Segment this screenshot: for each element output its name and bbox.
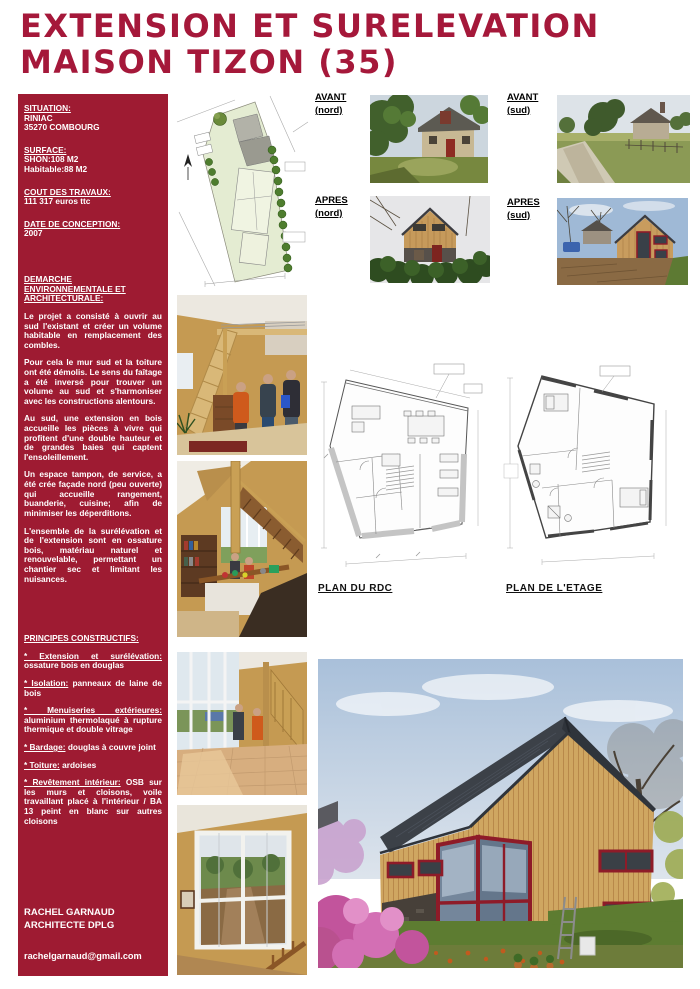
photo-corner-window xyxy=(177,805,307,975)
label-apres-sud: APRES (sud) xyxy=(507,197,540,223)
sidebar: SITUATION: RINIAC 35270 COMBOURG SURFACE… xyxy=(18,94,168,976)
architect-role: ARCHITECTE DPLG xyxy=(24,920,115,932)
demarche-paragraph: L'ensemble de la surélévation et de l'ex… xyxy=(24,527,162,585)
page-title: EXTENSION ET SURELEVATION MAISON TIZON (… xyxy=(20,8,600,80)
principes-term: * Bardage: xyxy=(24,742,66,752)
plan-etage-drawing xyxy=(502,360,682,578)
demarche-paragraph: Pour cela le mur sud et la toiture ont é… xyxy=(24,358,162,406)
principes-term: * Extension et surélévation: xyxy=(24,651,162,661)
principes-desc: ossature bois en douglas xyxy=(24,660,124,670)
label-avant-sud-sub: (sud) xyxy=(507,105,538,118)
situation-line: 35270 COMBOURG xyxy=(24,123,162,133)
architect-name: RACHEL GARNAUD xyxy=(24,907,115,919)
plan-rdc-drawing xyxy=(316,358,484,580)
photo-avant-sud xyxy=(557,95,690,183)
label-apres-sud-sub: (sud) xyxy=(507,210,540,223)
principes-item: * Toiture: ardoises xyxy=(24,761,162,771)
label-avant-nord-title: AVANT xyxy=(315,92,346,105)
principes-item: * Extension et surélévation: ossature bo… xyxy=(24,652,162,671)
principes-desc: aluminium thermolaqué à rupture thermiqu… xyxy=(24,715,162,735)
photo-exterior-south xyxy=(318,659,683,968)
principes-section: PRINCIPES CONSTRUCTIFS: * Extension et s… xyxy=(24,634,162,826)
photo-avant-nord xyxy=(370,95,488,183)
surface-line: Habitable:88 M2 xyxy=(24,165,162,175)
plan-etage-label: PLAN DE L'ETAGE xyxy=(506,583,602,594)
principes-term: * Toiture: xyxy=(24,760,60,770)
site-plan-drawing xyxy=(175,92,310,290)
plan-rdc-label: PLAN DU RDC xyxy=(318,583,392,594)
principes-term: * Isolation: xyxy=(24,678,68,688)
principes-item: * Bardage: douglas à couvre joint xyxy=(24,743,162,753)
demarche-section: DEMARCHE ENVIRONNEMENTALE ET ARCHITECTUR… xyxy=(24,275,162,584)
label-apres-nord-sub: (nord) xyxy=(315,208,348,221)
title-line2: MAISON TIZON (35) xyxy=(20,44,600,80)
principes-label: PRINCIPES CONSTRUCTIFS: xyxy=(24,634,162,644)
principes-desc: ardoises xyxy=(62,760,96,770)
label-apres-nord-title: APRES xyxy=(315,195,348,208)
principes-desc: douglas à couvre joint xyxy=(68,742,156,752)
principes-item: * Menuiseries extérieures: aluminium the… xyxy=(24,706,162,735)
principes-term: * Revêtement intérieur: xyxy=(24,777,121,787)
title-line1: EXTENSION ET SURELEVATION xyxy=(20,8,600,44)
principes-term: * Menuiseries extérieures: xyxy=(24,705,162,715)
label-avant-nord-sub: (nord) xyxy=(315,105,346,118)
photo-apres-sud xyxy=(557,198,688,285)
cout-line: 111 317 euros ttc xyxy=(24,197,162,207)
photo-apres-nord xyxy=(370,196,490,283)
label-avant-nord: AVANT (nord) xyxy=(315,92,346,118)
principes-item: * Isolation: panneaux de laine de bois xyxy=(24,679,162,698)
photo-interior-glazing xyxy=(177,652,307,795)
demarche-paragraph: Le projet a consisté à ouvrir au sud l'e… xyxy=(24,312,162,350)
photo-interior-mezzanine xyxy=(177,461,307,637)
label-avant-sud-title: AVANT xyxy=(507,92,538,105)
date-section: DATE DE CONCEPTION: 2007 xyxy=(24,220,162,239)
site-plan-image xyxy=(175,92,310,290)
architect-email: rachelgarnaud@gmail.com xyxy=(24,951,142,962)
demarche-paragraph: Un espace tampon, de service, a été crée… xyxy=(24,470,162,518)
cout-section: COUT DES TRAVAUX: 111 317 euros ttc xyxy=(24,188,162,207)
situation-section: SITUATION: RINIAC 35270 COMBOURG xyxy=(24,104,162,133)
surface-section: SURFACE: SHON:108 M2 Habitable:88 M2 xyxy=(24,146,162,175)
date-label: DATE DE CONCEPTION: xyxy=(24,220,162,230)
label-apres-sud-title: APRES xyxy=(507,197,540,210)
label-avant-sud: AVANT (sud) xyxy=(507,92,538,118)
presentation-board: EXTENSION ET SURELEVATION MAISON TIZON (… xyxy=(0,0,700,989)
demarche-paragraph: Au sud, une extension en bois accueille … xyxy=(24,414,162,462)
architect-signature: RACHEL GARNAUD ARCHITECTE DPLG xyxy=(24,907,115,932)
photo-interior-stair xyxy=(177,295,307,455)
label-apres-nord: APRES (nord) xyxy=(315,195,348,221)
demarche-label: DEMARCHE ENVIRONNEMENTALE ET ARCHITECTUR… xyxy=(24,275,162,304)
date-line: 2007 xyxy=(24,229,162,239)
principes-item: * Revêtement intérieur: OSB sur les murs… xyxy=(24,778,162,826)
